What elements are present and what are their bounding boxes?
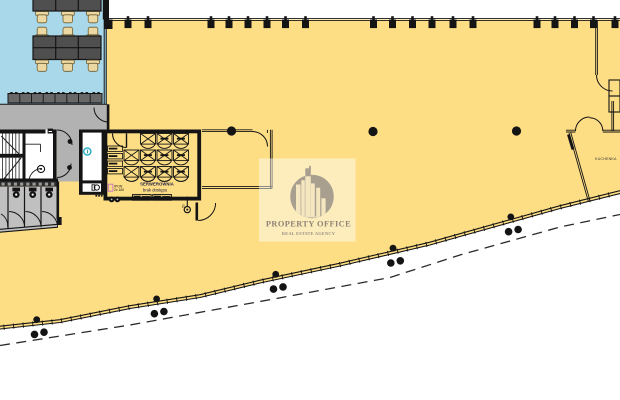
svg-text:PROPERTY OFFICE: PROPERTY OFFICE xyxy=(266,220,351,229)
svg-text:2x 160: 2x 160 xyxy=(114,188,124,192)
svg-text:brak dostępu: brak dostępu xyxy=(143,188,168,193)
svg-text:REAL ESTATE AGENCY: REAL ESTATE AGENCY xyxy=(282,231,336,236)
svg-text:KUCHENKA: KUCHENKA xyxy=(595,157,617,161)
svg-text:SERWEROWNIA: SERWEROWNIA xyxy=(140,182,174,187)
svg-text:50: 50 xyxy=(182,204,186,208)
